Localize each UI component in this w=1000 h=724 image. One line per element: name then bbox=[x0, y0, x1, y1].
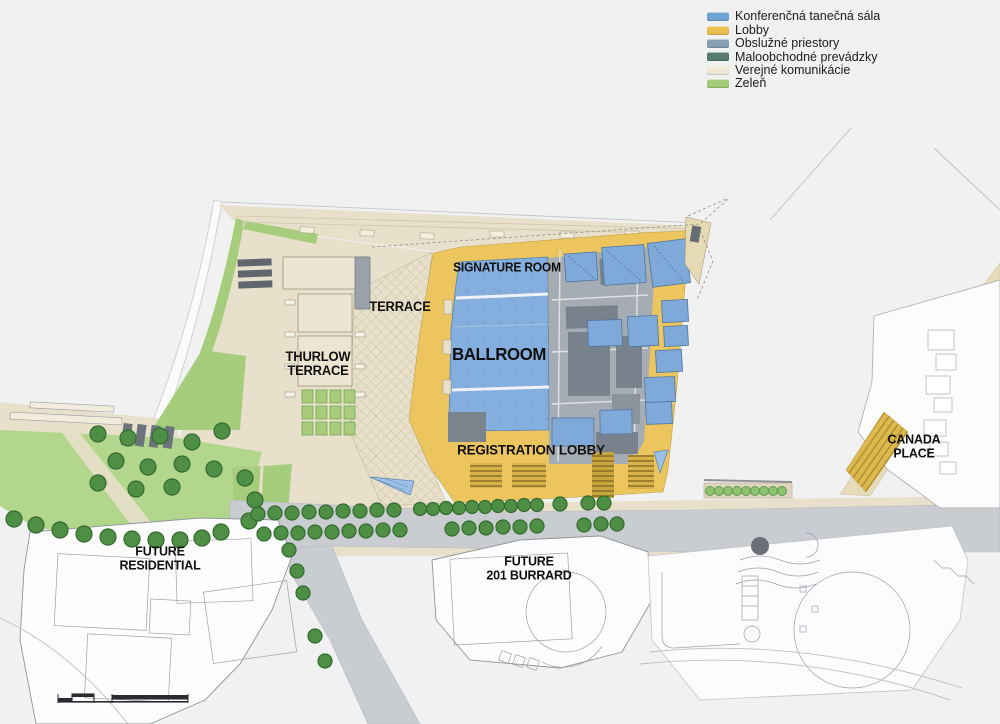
tree-icon bbox=[393, 523, 407, 537]
tree-icon bbox=[308, 525, 322, 539]
tree-icon bbox=[581, 496, 595, 510]
tree-icon bbox=[247, 492, 263, 508]
label-registration-lobby: REGISTRATION LOBBY bbox=[457, 443, 605, 458]
tree-icon bbox=[174, 456, 190, 472]
tree-icon bbox=[513, 520, 527, 534]
tree-icon bbox=[164, 479, 180, 495]
planter-box bbox=[344, 406, 355, 419]
tree-icon bbox=[336, 504, 350, 518]
legend: Konferenčná tanečná sála Lobby Obslužné … bbox=[707, 10, 880, 90]
tree-icon bbox=[76, 526, 92, 542]
tree-icon bbox=[140, 459, 156, 475]
tree-icon bbox=[120, 430, 136, 446]
tree-icon bbox=[206, 461, 222, 477]
bush-icon bbox=[715, 487, 724, 496]
tree-icon bbox=[28, 517, 44, 533]
planter-box bbox=[330, 406, 341, 419]
label-ballroom: BALLROOM bbox=[452, 345, 546, 363]
legend-color-swatch-lobby bbox=[707, 26, 729, 35]
planter-box bbox=[330, 422, 341, 435]
tree-icon bbox=[325, 525, 339, 539]
legend-item-label: Verejné komunikácie bbox=[735, 64, 850, 77]
tree-icon bbox=[90, 426, 106, 442]
tree-icon bbox=[274, 526, 288, 540]
planter-box bbox=[344, 422, 355, 435]
tree-icon bbox=[353, 504, 367, 518]
planter-box bbox=[316, 422, 327, 435]
tree-icon bbox=[342, 524, 356, 538]
site-plan-page: SIGNATURE ROOM BALLROOM TERRACE THURLOW … bbox=[0, 0, 1000, 724]
legend-item-label: Konferenčná tanečná sála bbox=[735, 10, 880, 23]
tree-icon bbox=[597, 496, 611, 510]
legend-item: Obslužné priestory bbox=[707, 37, 880, 50]
bush-icon bbox=[769, 487, 778, 496]
tree-icon bbox=[6, 511, 22, 527]
tree-icon bbox=[290, 564, 304, 578]
tree-icon bbox=[492, 500, 505, 513]
tree-icon bbox=[462, 521, 476, 535]
tree-icon bbox=[577, 518, 591, 532]
tree-icon bbox=[308, 629, 322, 643]
bush-icon bbox=[742, 487, 751, 496]
legend-item: Lobby bbox=[707, 23, 880, 36]
label-canada-place: CANADA PLACE bbox=[888, 432, 941, 459]
tree-icon bbox=[302, 505, 316, 519]
planter-bushes bbox=[706, 487, 787, 496]
tree-icon bbox=[268, 506, 282, 520]
legend-item: Maloobchodné prevádzky bbox=[707, 50, 880, 63]
tree-icon bbox=[319, 505, 333, 519]
legend-color-swatch-circulation bbox=[707, 66, 729, 75]
legend-item-label: Lobby bbox=[735, 24, 769, 37]
tree-icon bbox=[466, 501, 479, 514]
tree-icon bbox=[387, 503, 401, 517]
tree-icon bbox=[100, 529, 116, 545]
tree-icon bbox=[251, 507, 265, 521]
legend-item-label: Zeleň bbox=[735, 77, 766, 90]
label-future-residential: FUTURE RESIDENTIAL bbox=[119, 544, 200, 571]
tree-icon bbox=[214, 423, 230, 439]
tree-icon bbox=[257, 527, 271, 541]
planter-box bbox=[302, 390, 313, 403]
label-signature-room: SIGNATURE ROOM bbox=[453, 262, 561, 275]
legend-item: Konferenčná tanečná sála bbox=[707, 10, 880, 23]
legend-color-swatch-retail bbox=[707, 52, 729, 61]
tree-icon bbox=[184, 434, 200, 450]
bush-icon bbox=[733, 487, 742, 496]
stage-block bbox=[448, 412, 486, 442]
tree-icon bbox=[237, 470, 253, 486]
planter-box bbox=[302, 406, 313, 419]
tree-icon bbox=[414, 503, 427, 516]
tree-icon bbox=[318, 654, 332, 668]
tree-icon bbox=[553, 497, 567, 511]
label-thurlow-terrace: THURLOW TERRACE bbox=[286, 350, 351, 378]
tree-icon bbox=[213, 524, 229, 540]
tree-icon bbox=[52, 522, 68, 538]
planter-box bbox=[316, 390, 327, 403]
tree-icon bbox=[90, 475, 106, 491]
tree-icon bbox=[427, 503, 440, 516]
tree-icon bbox=[370, 503, 384, 517]
terrace-stairs bbox=[237, 258, 272, 288]
planter-box bbox=[344, 390, 355, 403]
tree-icon bbox=[479, 521, 493, 535]
bush-icon bbox=[751, 487, 760, 496]
tree-icon bbox=[445, 522, 459, 536]
legend-color-swatch-hall bbox=[707, 12, 729, 21]
tree-icon bbox=[296, 586, 310, 600]
legend-item: Zeleň bbox=[707, 77, 880, 90]
tree-icon bbox=[453, 502, 466, 515]
bush-icon bbox=[778, 487, 787, 496]
tree-icon bbox=[530, 519, 544, 533]
legend-color-swatch-green bbox=[707, 79, 729, 88]
bush-icon bbox=[724, 487, 733, 496]
planter-box bbox=[302, 422, 313, 435]
tree-icon bbox=[518, 499, 531, 512]
bush-icon bbox=[706, 487, 715, 496]
legend-item: Verejné komunikácie bbox=[707, 64, 880, 77]
tree-icon bbox=[291, 526, 305, 540]
tree-icon bbox=[376, 523, 390, 537]
planter-box bbox=[330, 390, 341, 403]
tree-icon bbox=[285, 506, 299, 520]
tree-icon bbox=[440, 502, 453, 515]
legend-color-swatch-service bbox=[707, 39, 729, 48]
stair-tower bbox=[355, 257, 370, 309]
tree-icon bbox=[128, 481, 144, 497]
tree-icon bbox=[505, 500, 518, 513]
tree-icon bbox=[496, 520, 510, 534]
tree-icon bbox=[108, 453, 124, 469]
tree-icon bbox=[594, 517, 608, 531]
tree-icon bbox=[282, 543, 296, 557]
tree-icon bbox=[359, 524, 373, 538]
tree-icon bbox=[531, 499, 544, 512]
bush-icon bbox=[760, 487, 769, 496]
label-terrace: TERRACE bbox=[369, 300, 430, 314]
label-future-201-burrard: FUTURE 201 BURRARD bbox=[486, 554, 571, 581]
tree-icon bbox=[610, 517, 624, 531]
planter-box bbox=[316, 406, 327, 419]
legend-item-label: Maloobchodné prevádzky bbox=[735, 51, 877, 64]
tree-icon bbox=[152, 428, 168, 444]
legend-item-label: Obslužné priestory bbox=[735, 37, 839, 50]
tree-icon bbox=[479, 501, 492, 514]
